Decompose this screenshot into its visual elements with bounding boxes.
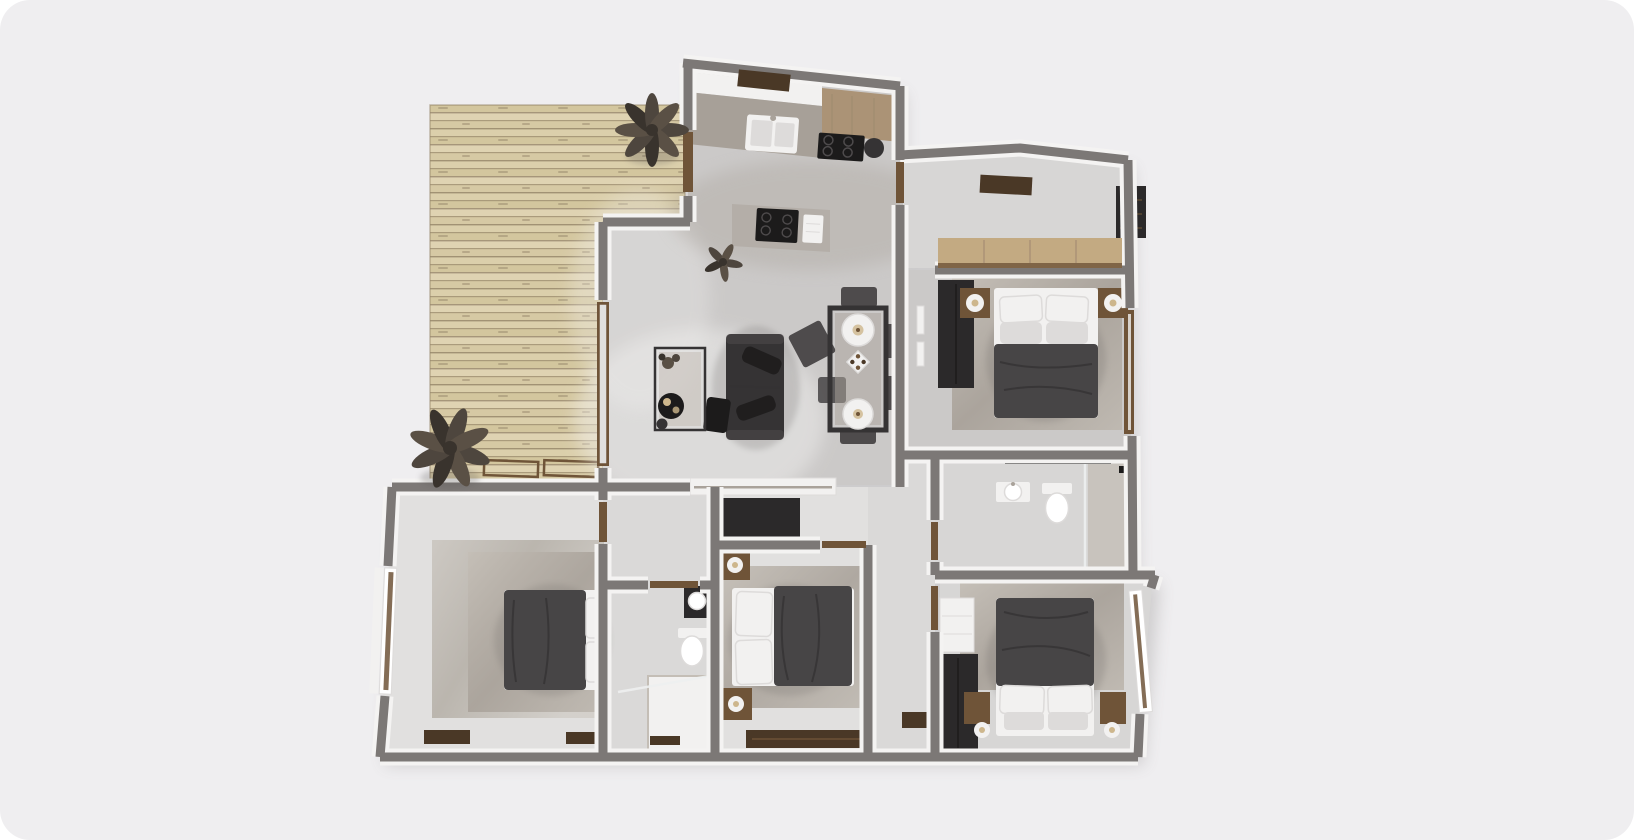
pot	[864, 138, 884, 158]
decor-bowl	[657, 419, 668, 430]
nightstand-top	[720, 550, 750, 580]
pillow	[1046, 322, 1088, 344]
coffee-table	[655, 348, 705, 430]
small-bath-door	[650, 581, 698, 588]
nightstand-left	[960, 288, 990, 318]
serving-tray	[658, 393, 684, 419]
floor-plan-image	[0, 0, 1634, 840]
wall-frame	[917, 342, 924, 366]
pillow	[999, 295, 1042, 323]
bedroom-right-door	[931, 586, 938, 630]
pillow	[1048, 685, 1093, 715]
suite-wardrobe-band	[938, 238, 1122, 268]
bed	[996, 598, 1094, 736]
kitchen-deck-door	[683, 132, 693, 192]
pillow	[1048, 712, 1088, 730]
pillow	[735, 639, 773, 684]
bedroom-left-door	[599, 502, 607, 542]
bedroom-center-door	[822, 541, 866, 548]
bed	[504, 590, 604, 690]
pendant-lamp	[843, 399, 873, 429]
hall-doormat	[980, 175, 1033, 196]
duvet	[996, 598, 1094, 686]
towel	[802, 214, 823, 243]
floor-plan-svg	[0, 0, 1634, 840]
wall-sink	[996, 482, 1030, 502]
chaise	[703, 396, 731, 433]
main-bath-door	[931, 522, 938, 560]
kitchen-island	[732, 204, 830, 252]
pillow	[1000, 322, 1042, 344]
drain-mat	[650, 736, 680, 745]
gas-range	[817, 132, 865, 161]
duvet	[994, 344, 1098, 418]
white-shelf	[940, 598, 974, 652]
wall-frame	[917, 306, 924, 334]
kitchen-sink	[745, 113, 799, 154]
master-side-door	[1124, 310, 1134, 434]
pillow	[1004, 712, 1044, 730]
nightstand-bottom	[720, 688, 752, 720]
pillow	[1000, 685, 1045, 715]
doormat	[424, 730, 470, 744]
potted-plant-top	[615, 93, 689, 167]
master-bed	[994, 288, 1098, 418]
island-cooktop	[755, 208, 799, 243]
doormat	[566, 732, 596, 744]
hall-doormat	[902, 712, 930, 728]
suite-entry-door	[896, 162, 904, 203]
pillow	[735, 591, 773, 636]
shower-floor	[1088, 461, 1130, 569]
dining-chair	[841, 287, 877, 307]
glazed-deck-door	[597, 302, 609, 466]
bed	[732, 586, 854, 686]
pendant-lamp	[842, 314, 874, 346]
pillow	[1045, 295, 1088, 323]
